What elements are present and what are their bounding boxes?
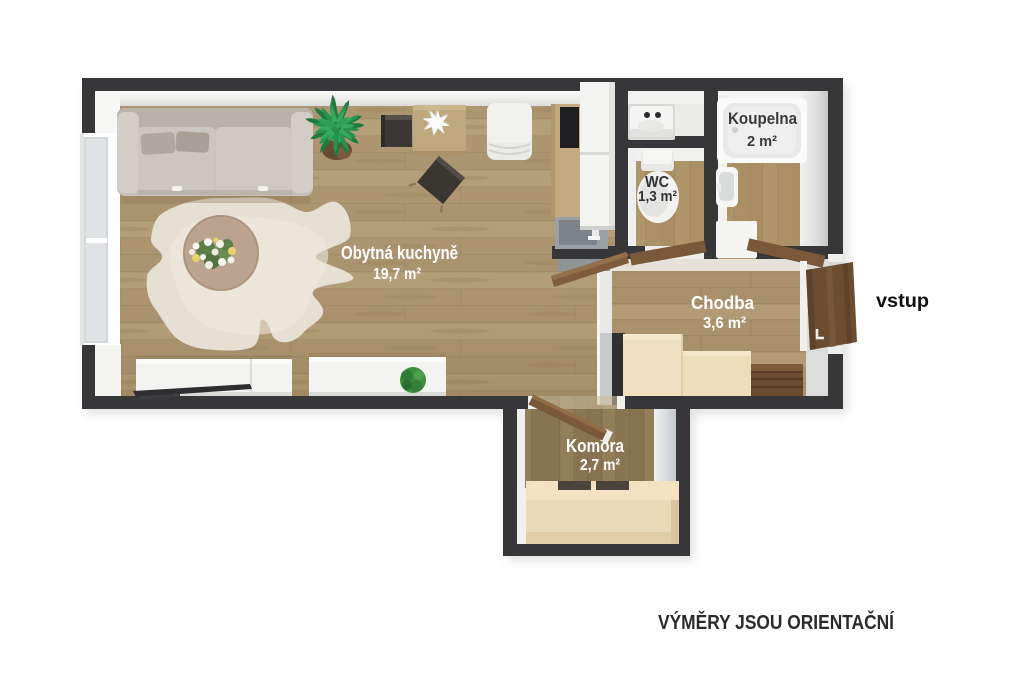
svg-text:Komora: Komora [566,436,625,456]
svg-text:Obytná kuchyně: Obytná kuchyně [341,243,458,263]
svg-text:3,6 m²: 3,6 m² [703,315,746,332]
svg-text:2,7 m²: 2,7 m² [580,457,620,474]
svg-text:VÝMĚRY JSOU ORIENTAČNÍ: VÝMĚRY JSOU ORIENTAČNÍ [658,610,894,634]
svg-text:vstup: vstup [876,291,929,312]
svg-text:19,7 m²: 19,7 m² [373,266,421,283]
svg-text:1,3 m²: 1,3 m² [638,188,677,205]
svg-text:Chodba: Chodba [691,293,755,313]
svg-text:2 m²: 2 m² [747,133,777,150]
svg-text:Koupelna: Koupelna [728,110,798,128]
